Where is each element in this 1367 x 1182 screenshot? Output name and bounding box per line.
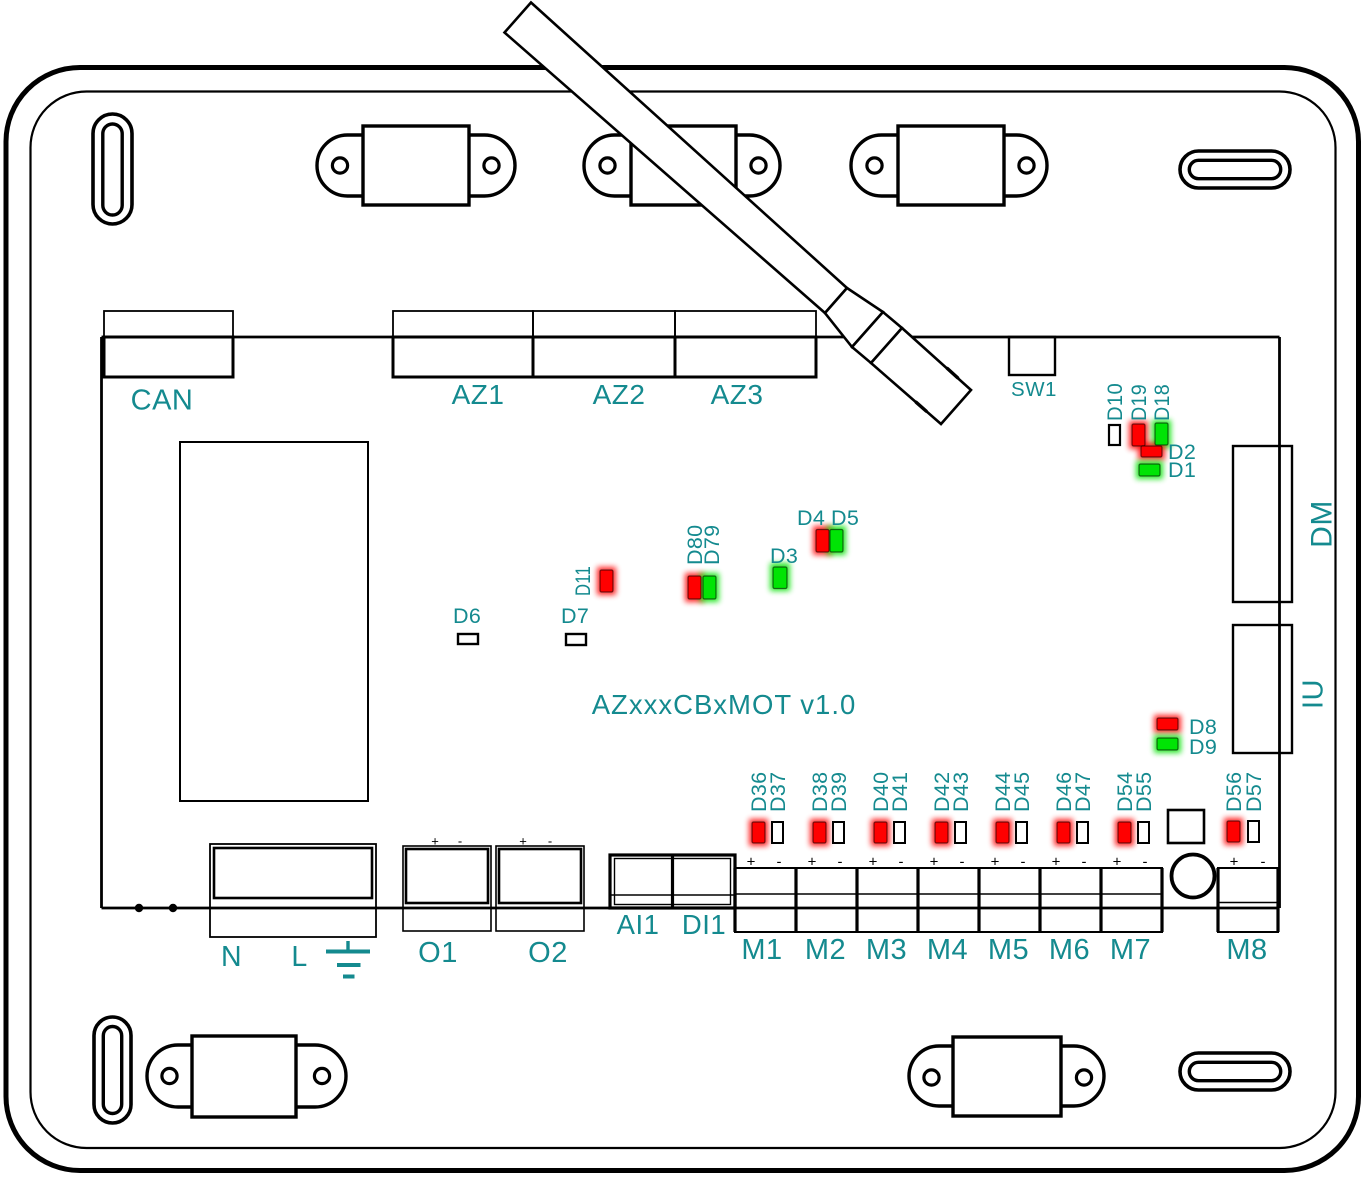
svg-text:M2: M2 [805,934,846,966]
svg-text:D19: D19 [1127,384,1151,421]
svg-text:-: - [899,854,904,871]
svg-text:-: - [777,854,782,871]
svg-text:AZ2: AZ2 [593,379,646,410]
svg-text:+: + [808,854,817,871]
svg-text:D43: D43 [949,772,973,812]
svg-text:+: + [1113,854,1122,871]
svg-text:M7: M7 [1110,934,1151,966]
svg-text:DM: DM [1306,500,1339,548]
svg-text:-: - [960,854,965,871]
svg-text:D39: D39 [827,772,851,812]
svg-text:D3: D3 [770,544,798,568]
svg-text:AZxxxCBxMOT v1.0: AZxxxCBxMOT v1.0 [592,689,857,720]
svg-text:M1: M1 [741,934,782,966]
svg-text:D55: D55 [1132,772,1156,812]
svg-text:+: + [431,834,439,849]
svg-text:D10: D10 [1103,383,1127,421]
svg-text:D9: D9 [1189,735,1217,759]
svg-text:-: - [1082,854,1087,871]
svg-text:M5: M5 [988,934,1029,966]
svg-text:CAN: CAN [131,385,194,417]
svg-text:D45: D45 [1010,772,1034,812]
svg-text:N: N [221,941,242,973]
svg-text:D47: D47 [1071,772,1095,812]
svg-text:AI1: AI1 [617,909,660,940]
svg-text:AZ3: AZ3 [711,379,764,410]
svg-text:+: + [1230,854,1239,871]
svg-text:+: + [869,854,878,871]
svg-text:D79: D79 [700,525,724,565]
svg-text:+: + [1052,854,1061,871]
svg-text:+: + [991,854,1000,871]
svg-text:+: + [747,854,756,871]
svg-text:-: - [458,834,462,849]
svg-text:L: L [291,941,307,973]
svg-text:IU: IU [1298,679,1330,709]
svg-text:-: - [1021,854,1026,871]
svg-text:O1: O1 [418,937,458,969]
svg-text:-: - [838,854,843,871]
svg-text:M6: M6 [1049,934,1090,966]
svg-text:D5: D5 [831,506,859,530]
svg-text:D7: D7 [561,604,589,628]
svg-text:D41: D41 [888,772,912,812]
svg-text:DI1: DI1 [682,909,726,940]
svg-text:D4: D4 [797,506,825,530]
svg-text:+: + [930,854,939,871]
svg-text:D11: D11 [571,566,595,596]
svg-text:SW1: SW1 [1011,378,1057,401]
svg-text:D57: D57 [1242,772,1266,812]
svg-text:+: + [519,834,527,849]
svg-text:D18: D18 [1150,384,1174,421]
svg-text:-: - [1261,854,1266,871]
svg-text:AZ1: AZ1 [452,379,505,410]
svg-text:D37: D37 [766,772,790,812]
svg-text:O2: O2 [528,937,568,969]
svg-text:M4: M4 [927,934,968,966]
svg-text:M8: M8 [1226,934,1267,966]
svg-text:D1: D1 [1168,458,1196,482]
svg-text:-: - [1143,854,1148,871]
svg-text:D6: D6 [453,604,481,628]
svg-text:-: - [548,834,552,849]
svg-text:M3: M3 [866,934,907,966]
